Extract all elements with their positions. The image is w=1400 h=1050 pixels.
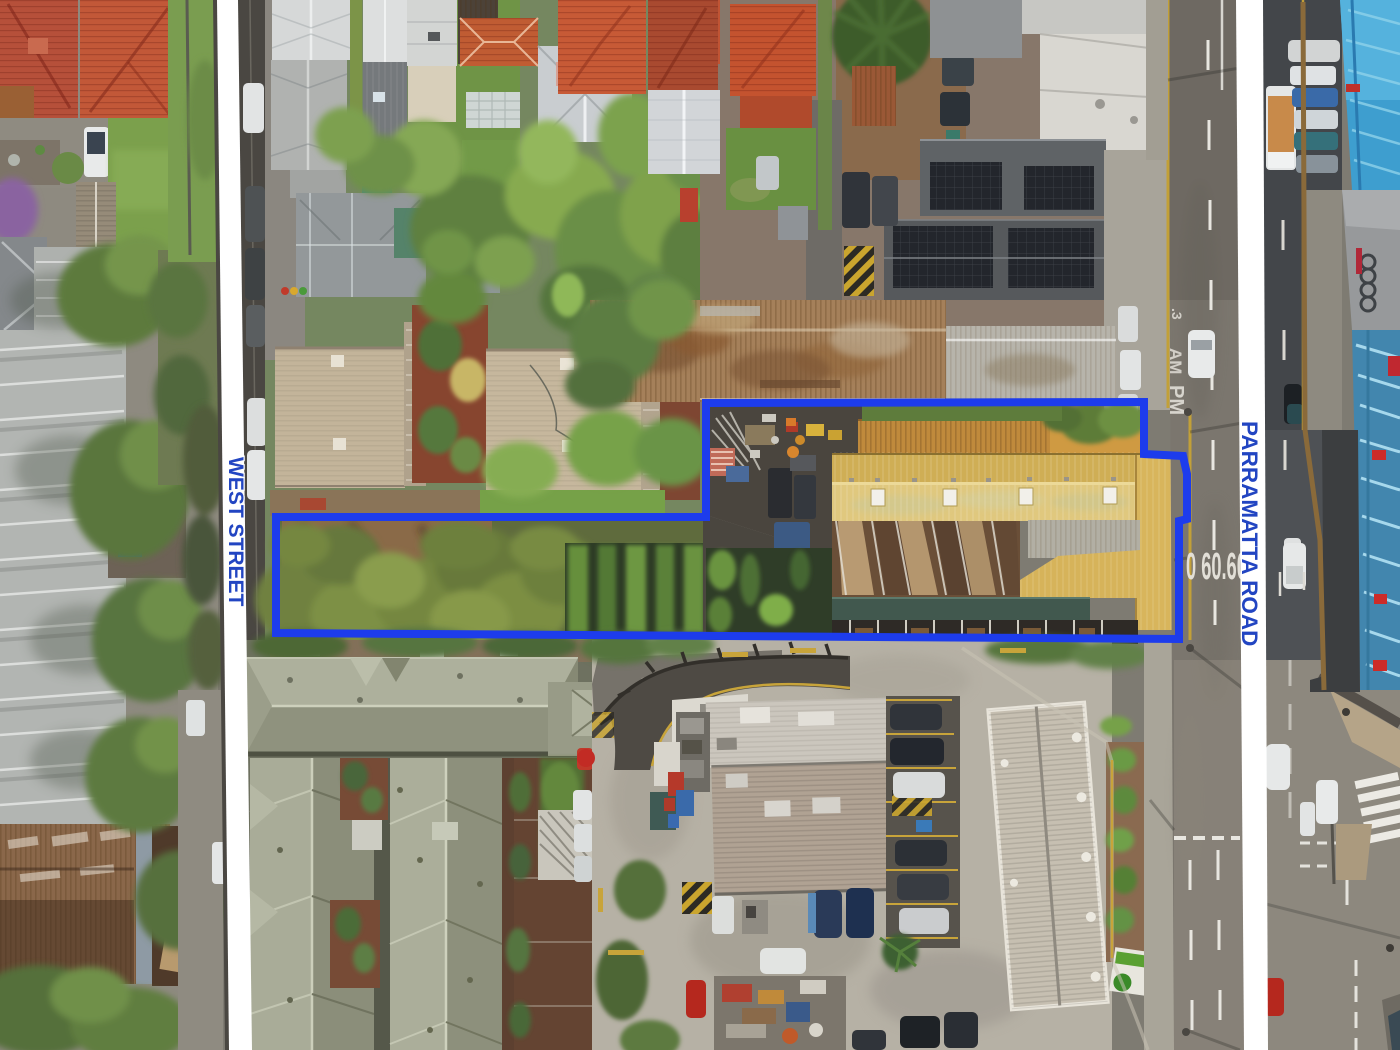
svg-text:PARRAMATTA ROAD: PARRAMATTA ROAD bbox=[1237, 421, 1262, 646]
svg-text:AM: AM bbox=[1166, 348, 1185, 374]
svg-text:.3: .3 bbox=[1169, 308, 1185, 320]
svg-text:PM: PM bbox=[1165, 385, 1187, 415]
svg-text:WEST STREET: WEST STREET bbox=[224, 457, 247, 607]
